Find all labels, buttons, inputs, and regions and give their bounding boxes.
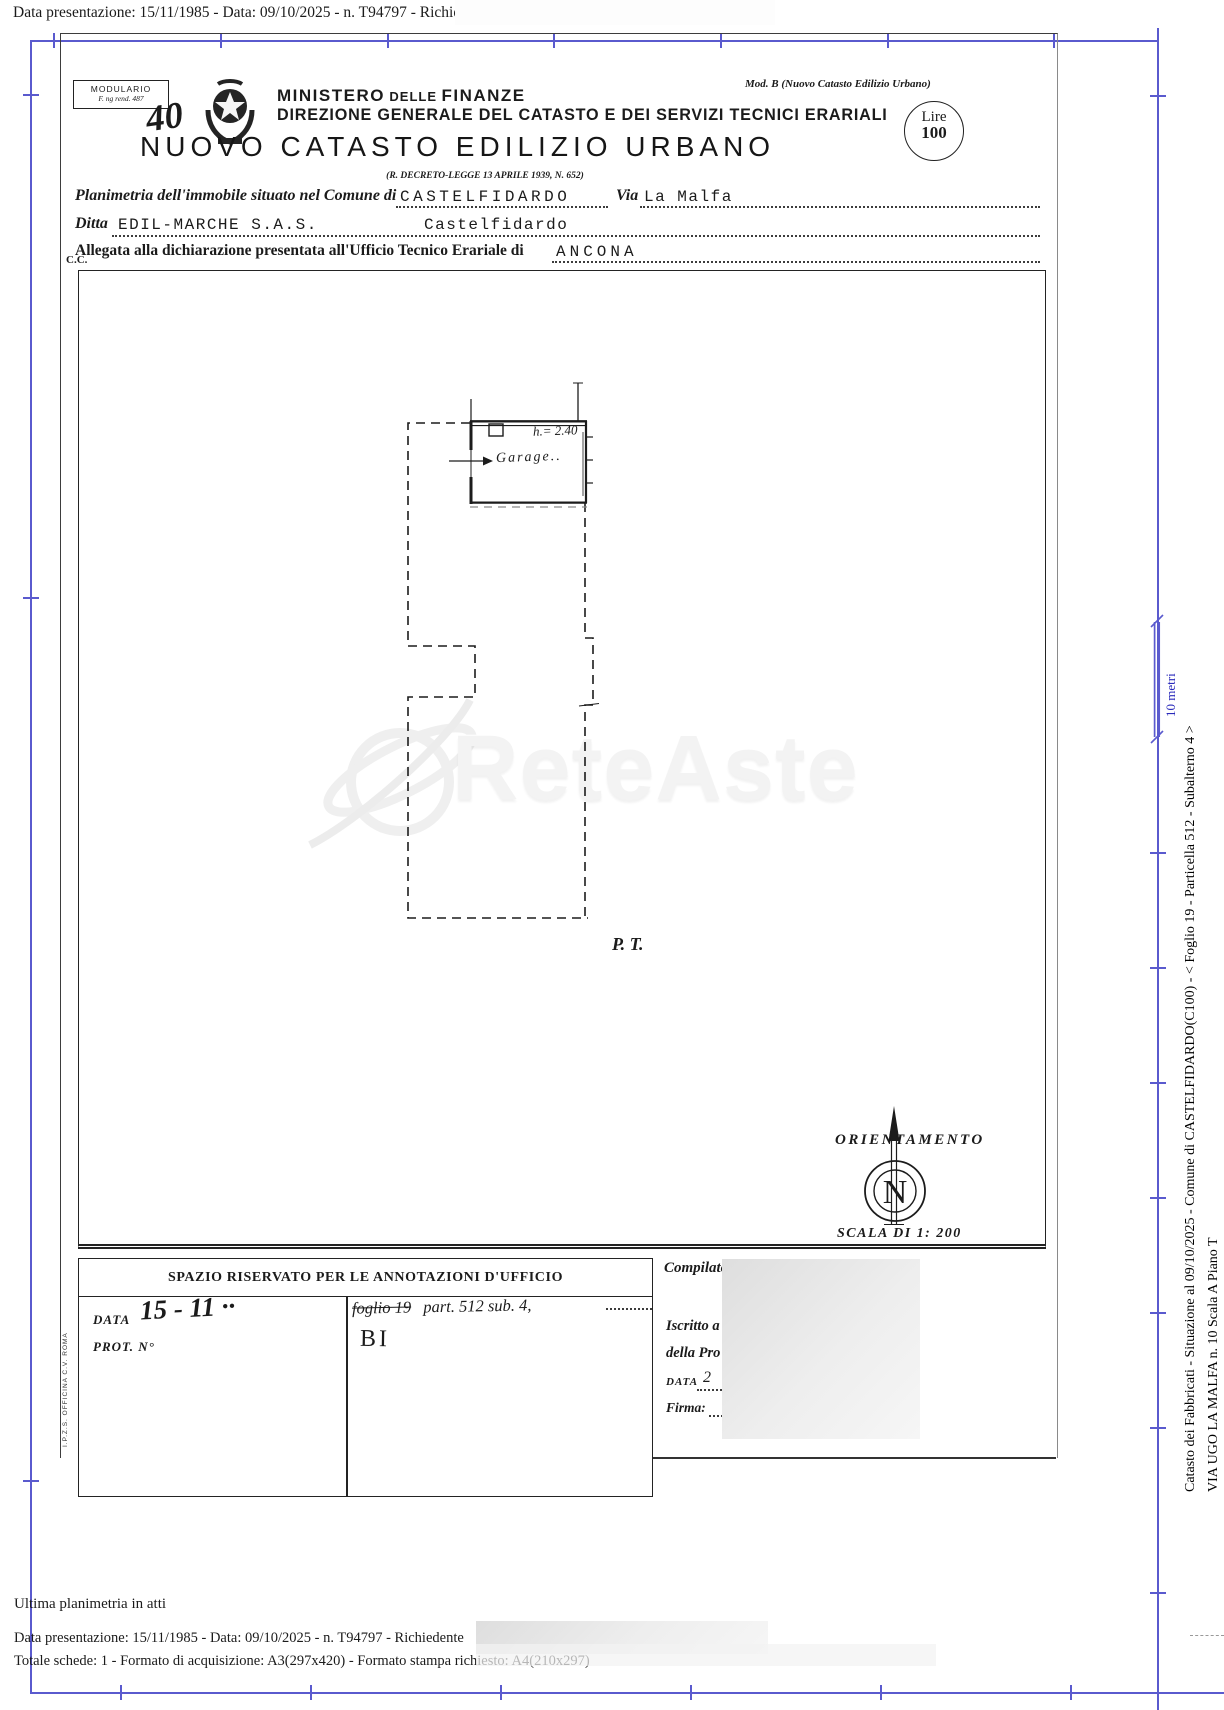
sidebar-address-line: VIA UGO LA MALFA n. 10 Scala A Piano T [1206,1237,1222,1492]
office-redaction-box [722,1259,920,1439]
top-redaction-box [455,0,775,25]
scale-bar-label: 10 metri [1163,673,1179,717]
compass-north-letter: N [883,1174,908,1211]
office-section-bottom-line [653,1457,1056,1459]
dotted-line [697,1388,722,1391]
ditta-value-2: Castelfidardo [424,216,568,234]
office-data-mark: 2 [703,1369,711,1387]
ditta-value: EDIL-MARCHE S.A.S. [118,216,318,234]
bi-note: BI [360,1326,390,1354]
compilato-label: Compilato [664,1260,728,1277]
parcel-note-text: part. 512 sub. 4, [423,1295,532,1316]
floor-level-label: P. T. [612,934,644,955]
garage-label: Garage.. [496,449,562,467]
data-label: DATA [93,1312,130,1328]
via-value: La Malfa [644,188,733,206]
foglio-struck-text: foglio 19 [352,1298,411,1318]
printer-mark: I.P.Z.S. OFFICINA C.V. ROMA [62,1332,69,1447]
cc-label: C.C. [66,254,87,266]
data-handwritten-value: 15 - 11 ·· [139,1291,236,1327]
orientation-label: ORIENTAMENTO [835,1132,985,1149]
annotations-title: SPAZIO RISERVATO PER LE ANNOTAZIONI D'UF… [168,1270,563,1286]
ditta-label: Ditta [75,215,108,233]
prot-label: PROT. N° [93,1339,155,1355]
modulario-line1: MODULARIO [74,84,168,94]
annotations-divider [346,1296,348,1496]
scanned-cadastral-document: ReteAste Data presentazione: 15/11/1985 … [0,0,1224,1710]
sidebar-situation-line: Catasto dei Fabbricati - Situazione al 0… [1183,725,1199,1492]
footer-redaction-fade [476,1644,936,1666]
comune-value: CASTELFIDARDO [400,188,570,206]
ufficio-label: Allegata alla dichiarazione presentata a… [75,242,524,260]
della-label: della Pro [666,1345,720,1362]
office-data-label: DATA [666,1376,698,1388]
decree-line: (R. DECRETO-LEGGE 13 APRILE 1939, N. 652… [140,171,830,181]
comune-label: Planimetria dell'immobile situato nel Co… [75,187,396,205]
top-meta-line: Data presentazione: 15/11/1985 - Data: 0… [13,4,494,22]
document-title: NUOVO CATASTO EDILIZIO URBANO [140,131,775,163]
mod-b-label: Mod. B (Nuovo Catasto Edilizio Urbano) [745,78,931,90]
lire-stamp: Lire 100 [904,101,964,161]
scale-label: SCALA DI 1: 200 [837,1226,962,1242]
dotted-line [709,1414,723,1417]
direction-line: DIREZIONE GENERALE DEL CATASTO E DEI SER… [277,106,888,125]
firma-label: Firma: [666,1400,706,1416]
footer-ultima-line: Ultima planimetria in atti [14,1596,166,1613]
ministry-word2: DELLE [389,89,437,104]
via-label: Via [616,187,638,205]
footer-data-line: Data presentazione: 15/11/1985 - Data: 0… [14,1630,464,1647]
lire-value: 100 [905,126,963,140]
iscritto-label: Iscritto a [666,1318,720,1335]
scale-bar [1151,615,1163,743]
ufficio-value: ANCONA [556,243,638,261]
dotted-line [606,1307,652,1310]
garage-height-label: h.= 2.40 [533,422,578,440]
ministry-word3: FINANZE [441,86,525,105]
stray-dashed-mark [1190,1635,1224,1636]
parcel-annotation: foglio 19 part. 512 sub. 4, [352,1295,532,1318]
ministry-word1: MINISTERO [277,86,385,105]
